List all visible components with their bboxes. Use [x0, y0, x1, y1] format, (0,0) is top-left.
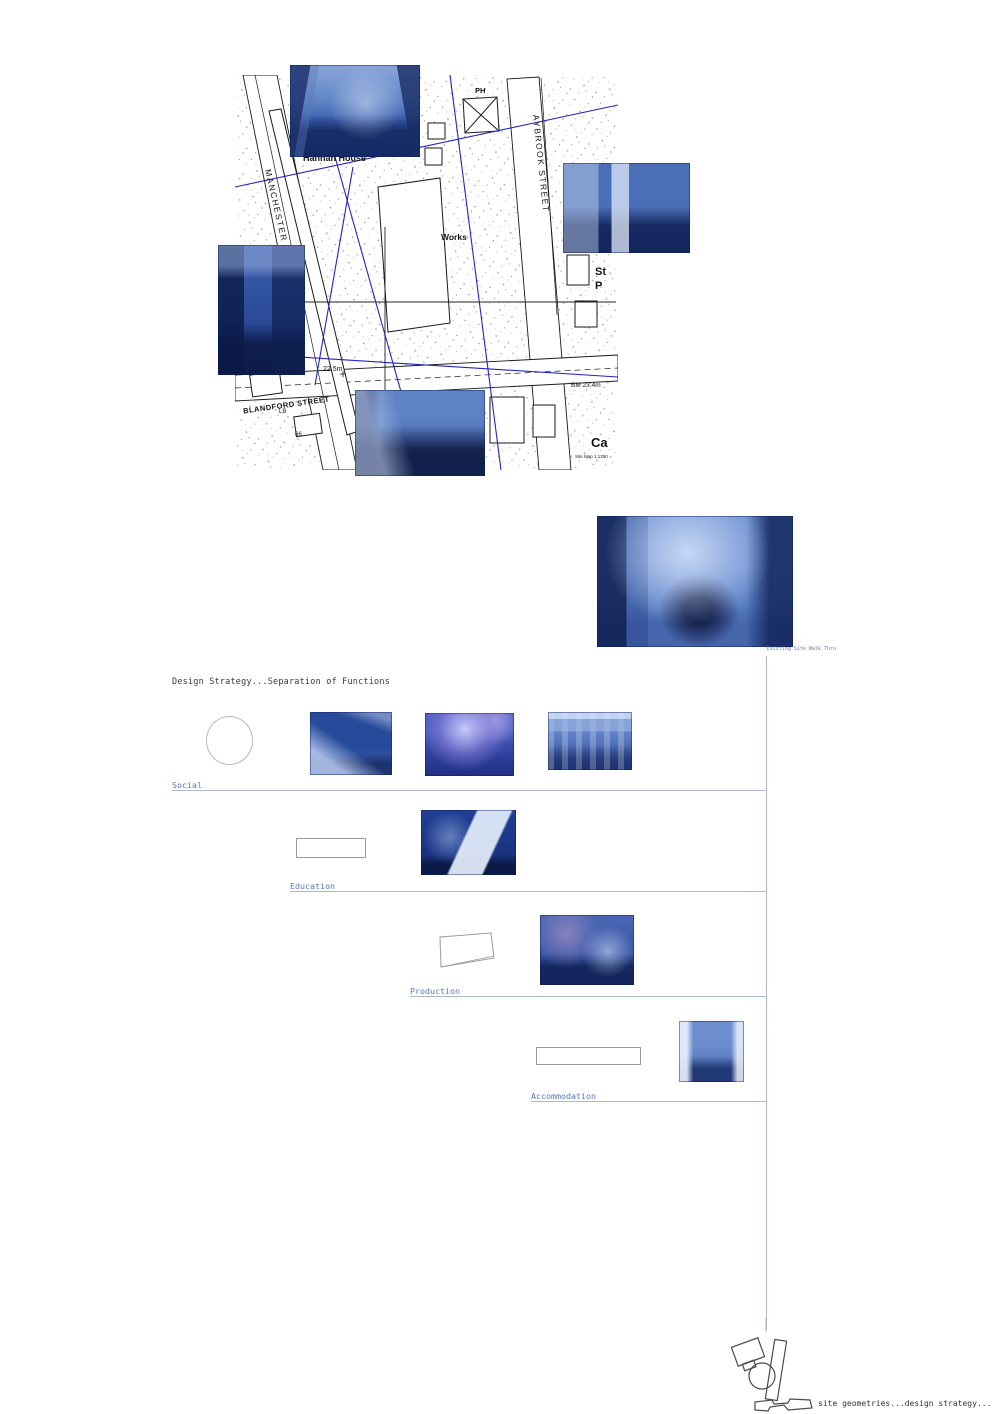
street-walkthrough-photo: [597, 516, 793, 647]
street-photo-caption: Existing Site Walk Thru: [700, 646, 836, 652]
label-st: St: [595, 266, 606, 278]
map-photo-buildings-bottom: [355, 390, 485, 476]
education-shape-bar: [296, 838, 366, 858]
map-photo-buildings-right: [563, 163, 690, 253]
production-rule: [410, 996, 766, 997]
accommodation-rule: [531, 1101, 766, 1102]
label-benchmark: BM 23.4m: [571, 382, 601, 389]
map-photo-skyline-top: [290, 65, 420, 157]
strategy-title: Design Strategy...Separation of Function…: [172, 677, 390, 687]
label-building-number: 66: [295, 432, 302, 438]
social-shape-circle: [206, 716, 253, 765]
label-p: P: [595, 280, 602, 292]
accommodation-link[interactable]: Accommodation: [531, 1091, 596, 1101]
education-rule: [290, 891, 766, 892]
production-photo-workshop: [540, 915, 634, 985]
label-ph: PH: [475, 86, 485, 95]
footer-caption: site geometries...design strategy...: [818, 1399, 991, 1408]
accommodation-shape-bar: [536, 1047, 641, 1065]
label-ca: Ca: [591, 435, 608, 450]
label-works: Works: [441, 232, 467, 242]
production-shape-polygon: [438, 928, 498, 970]
production-link[interactable]: Production: [410, 986, 460, 996]
label-lb: LB: [279, 409, 286, 415]
map-photo-buildings-left: [218, 245, 305, 375]
label-scale-note: Site Map 1:1250: [575, 454, 608, 459]
social-photo-bar: [310, 712, 392, 775]
social-rule: [172, 790, 766, 791]
presentation-sheet: MANCHESTER STREET AYBROOK STREET Hannah …: [0, 0, 1000, 1414]
social-photo-nightclub: [425, 713, 514, 776]
social-photo-market: [548, 712, 632, 770]
vertical-connector-line: [766, 656, 767, 1330]
education-photo-study: [421, 810, 516, 875]
education-link[interactable]: Education: [290, 881, 335, 891]
label-spot-height: 22.5m: [323, 366, 343, 373]
accommodation-photo-room: [679, 1021, 744, 1082]
social-link[interactable]: Social: [172, 780, 202, 790]
